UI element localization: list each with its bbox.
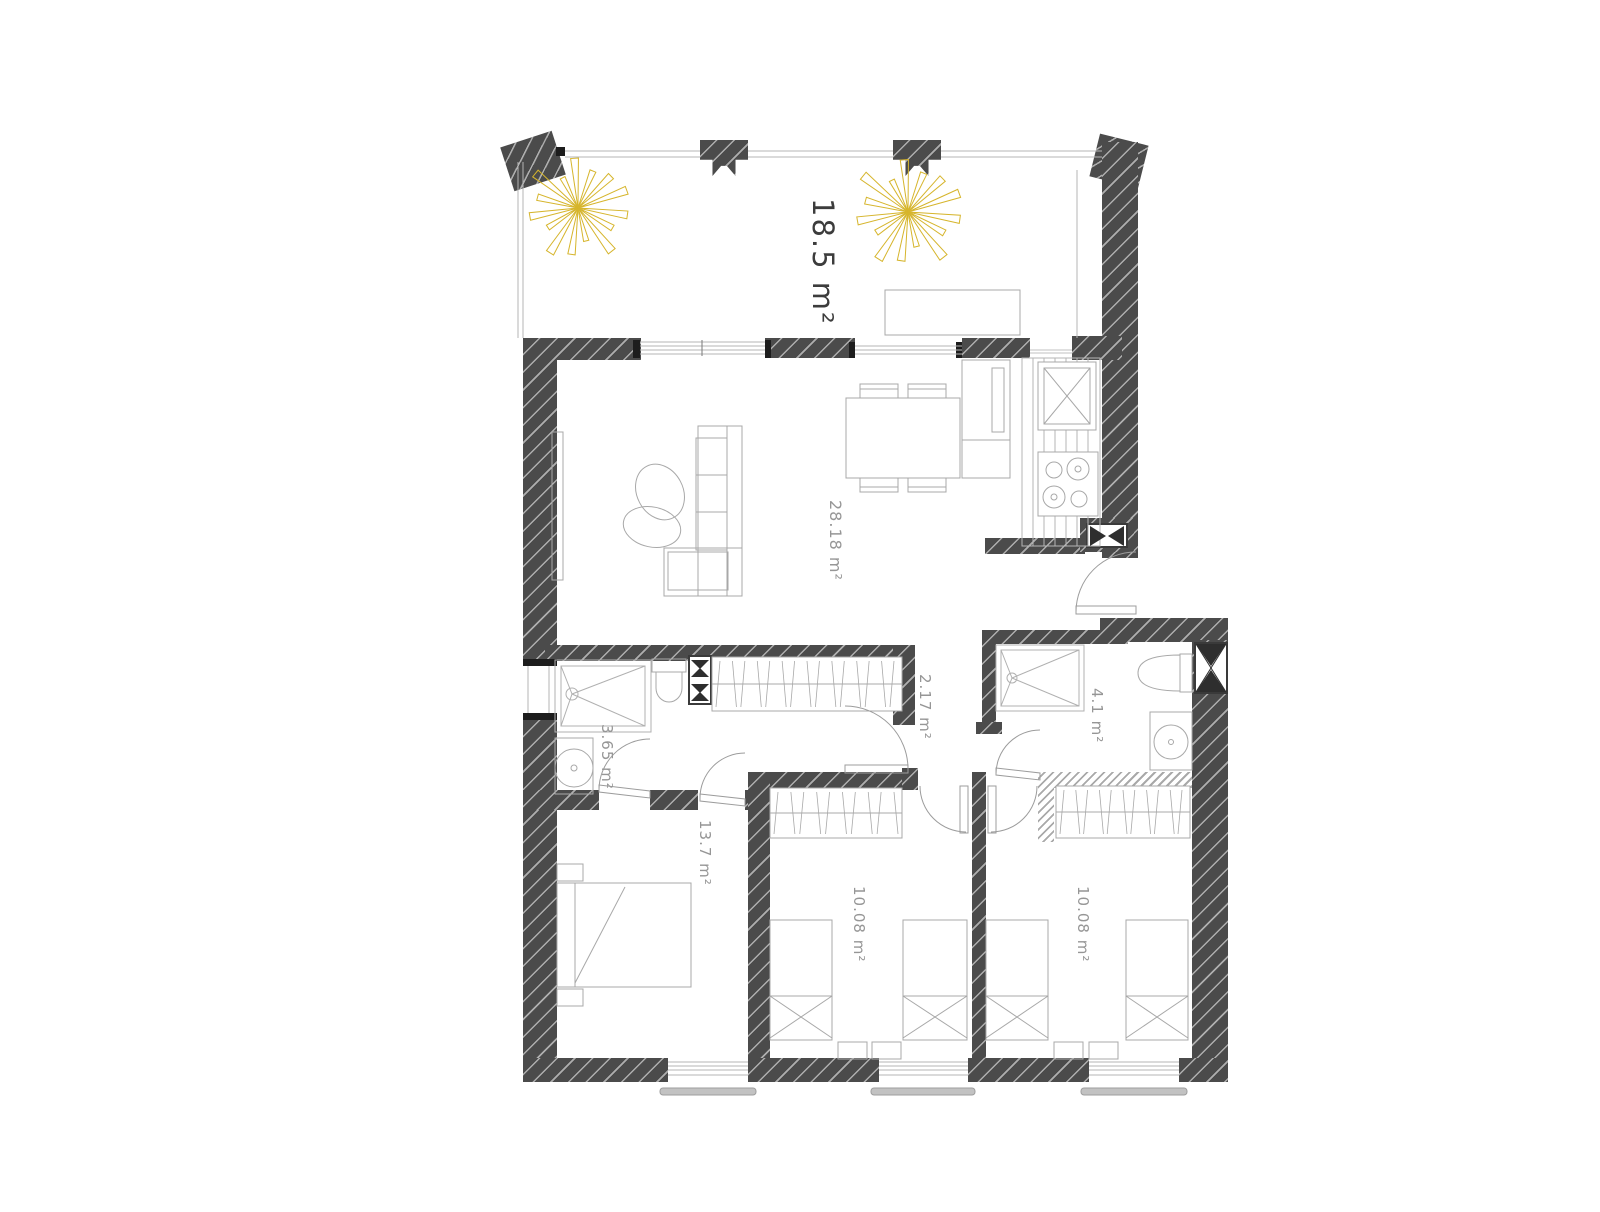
plant-icon	[857, 160, 961, 262]
window-sill	[1081, 1088, 1187, 1095]
room-label-living-kitchen: 28.18 m²	[826, 500, 845, 581]
door-living-corridor	[845, 706, 908, 773]
door-bedroom-3	[988, 786, 1037, 833]
window-bedroom-1	[668, 1062, 748, 1075]
door-bedroom-2	[920, 786, 968, 833]
window-sill	[871, 1088, 975, 1095]
room-label-bedroom-right: 10.08 m²	[1074, 886, 1092, 962]
pouf	[619, 456, 693, 553]
room-label-bathroom-left: 3.65 m²	[598, 724, 616, 790]
washing-machine	[555, 738, 593, 794]
wardrobe-bedroom-2	[770, 788, 902, 838]
room-label-bedroom-middle: 10.08 m²	[850, 886, 868, 962]
window-sill	[660, 1088, 756, 1095]
window-bedroom-2	[879, 1062, 968, 1075]
door-bedroom-1	[700, 753, 745, 806]
wardrobe-bedroom-3	[1056, 786, 1190, 838]
door-bathroom-right	[996, 730, 1040, 780]
shower-left	[555, 660, 651, 732]
nightstand	[1089, 1042, 1118, 1059]
nightstand	[838, 1042, 867, 1059]
chair	[860, 384, 946, 492]
plant-icon	[529, 158, 628, 255]
tv-board	[552, 432, 563, 580]
nightstand	[557, 864, 583, 881]
dining-table	[846, 384, 960, 492]
room-label-bathroom-right: 4.1 m²	[1088, 688, 1106, 743]
fridge	[962, 360, 1010, 478]
room-label-hallway: 2.17 m²	[916, 674, 934, 740]
toilet-right	[1138, 654, 1192, 692]
single-bed	[1126, 920, 1188, 1040]
terrace-bench	[885, 290, 1020, 335]
window-living-2	[855, 346, 962, 354]
wardrobe-corridor	[712, 657, 902, 711]
room-label-terrace: 18.5 m²	[806, 198, 840, 326]
room-label-bedroom-main: 13.7 m²	[696, 820, 714, 886]
nightstand	[872, 1042, 901, 1059]
shower-right	[996, 645, 1084, 711]
nightstand	[1054, 1042, 1083, 1059]
single-bed	[770, 920, 832, 1040]
floor-plan: 18.5 m² 28.18 m² 2.17 m² 4.1 m² 3.65 m² …	[0, 0, 1600, 1212]
window-bathroom-left	[528, 666, 549, 713]
double-bed	[557, 864, 691, 1006]
plan-linework	[0, 0, 1600, 1212]
door-entry	[1076, 552, 1136, 614]
window-bedroom-3	[1089, 1062, 1179, 1075]
window-living-1	[640, 340, 765, 356]
cooktop	[1038, 452, 1098, 516]
single-bed	[903, 920, 967, 1040]
kitchen-sink	[1038, 362, 1096, 430]
toilet-left	[652, 659, 686, 702]
vanity-sink	[1150, 712, 1192, 770]
sofa	[664, 426, 742, 596]
single-bed	[986, 920, 1048, 1040]
window-kitchen-pass	[1030, 350, 1072, 353]
nightstand	[557, 989, 583, 1006]
